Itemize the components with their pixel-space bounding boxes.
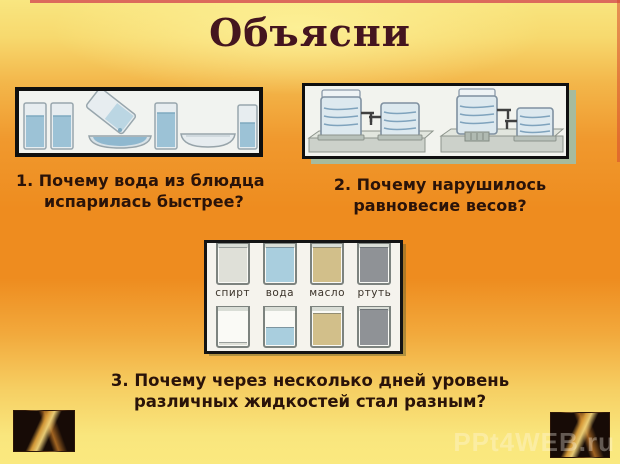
evaporation-illustration-svg bbox=[19, 91, 259, 153]
question-1-line1: 1. Почему вода из блюдца bbox=[16, 170, 282, 191]
question-2-line2: равновесие весов? bbox=[312, 195, 568, 216]
glass-спирт bbox=[216, 306, 250, 348]
glass-спирт bbox=[216, 243, 250, 285]
glass-вода bbox=[263, 306, 297, 348]
slide: Объясни bbox=[0, 0, 620, 464]
liquid-label-ртуть: ртуть bbox=[352, 287, 396, 304]
slide-title: Объясни bbox=[0, 10, 620, 55]
question-3: 3. Почему через несколько дней уровень р… bbox=[70, 370, 550, 412]
liquid-fill bbox=[360, 247, 388, 282]
question-1: 1. Почему вода из блюдца испарилась быст… bbox=[16, 170, 282, 212]
glass-rim bbox=[265, 307, 295, 311]
liquid-fill bbox=[219, 247, 247, 282]
scales-illustration-svg bbox=[305, 86, 566, 156]
glass-ртуть bbox=[357, 306, 391, 348]
glass-масло bbox=[310, 306, 344, 348]
liquids-labels: спиртводамаслортуть bbox=[207, 287, 400, 304]
liquid-label-спирт: спирт bbox=[211, 287, 255, 304]
glass-rim bbox=[312, 307, 342, 311]
corner-photo-left bbox=[13, 410, 75, 452]
evaporation-dishes-image bbox=[15, 87, 263, 157]
question-1-line2: испарилась быстрее? bbox=[16, 191, 282, 212]
question-2-line1: 2. Почему нарушилось bbox=[312, 174, 568, 195]
liquids-initial-row bbox=[207, 243, 400, 287]
question-3-line1: 3. Почему через несколько дней уровень bbox=[70, 370, 550, 391]
liquid-fill bbox=[266, 247, 294, 282]
watermark: PPt4WEB.ru bbox=[453, 427, 615, 458]
liquid-fill bbox=[219, 342, 247, 345]
liquid-fill bbox=[313, 313, 341, 345]
liquid-fill bbox=[360, 309, 388, 345]
liquids-later-row bbox=[207, 304, 400, 348]
glass-ртуть bbox=[357, 243, 391, 285]
glass-rim bbox=[218, 307, 248, 311]
question-3-line2: различных жидкостей стал разным? bbox=[70, 391, 550, 412]
glass-вода bbox=[263, 243, 297, 285]
liquid-fill bbox=[266, 327, 294, 345]
liquids-image: спиртводамаслортуть bbox=[204, 240, 403, 354]
glass-масло bbox=[310, 243, 344, 285]
scales-image bbox=[302, 83, 569, 159]
tilted-glass bbox=[85, 91, 136, 135]
liquid-label-масло: масло bbox=[305, 287, 349, 304]
liquid-label-вода: вода bbox=[258, 287, 302, 304]
liquid-fill bbox=[313, 247, 341, 282]
question-2: 2. Почему нарушилось равновесие весов? bbox=[312, 174, 568, 216]
top-edge-artifact bbox=[30, 0, 620, 3]
